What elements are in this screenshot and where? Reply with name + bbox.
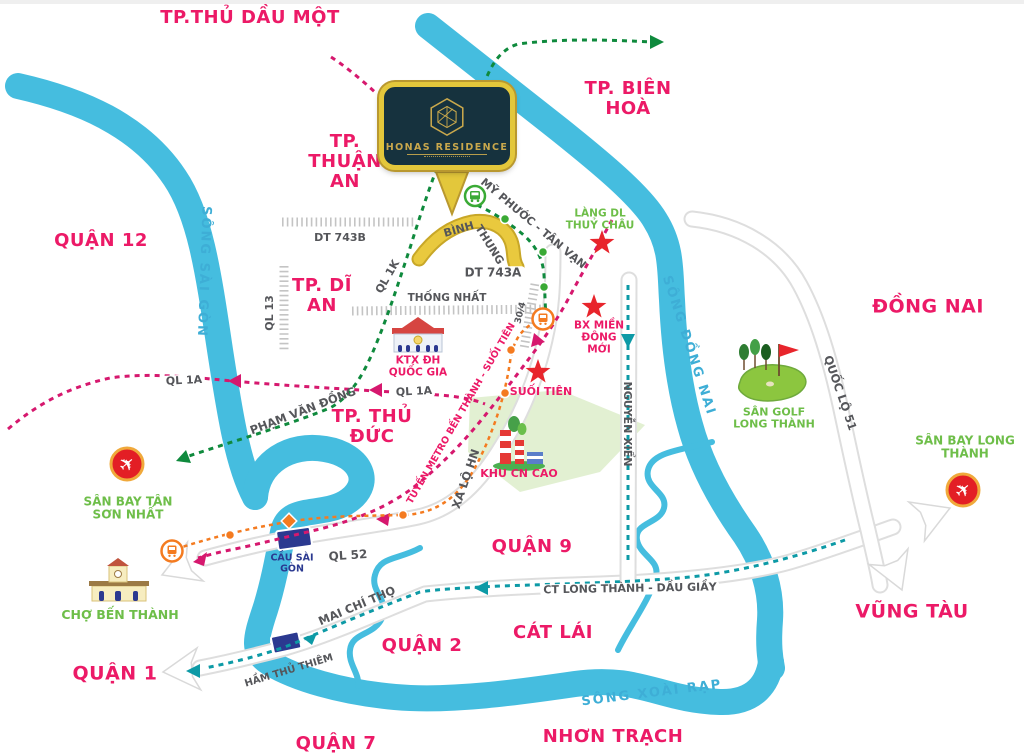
label-quan-12: QUẬN 12 [54, 231, 148, 251]
golf-course-icon [739, 339, 806, 401]
label-tp-di-an: TP. DĨ AN [291, 276, 353, 316]
green-station-dot [539, 248, 548, 257]
train-station-icon-benthanh [162, 541, 183, 562]
road-quoclo51 [692, 219, 880, 585]
metro-station-dot [226, 531, 235, 540]
label-dt743b: DT 743B [314, 232, 366, 244]
label-cau-sai-gon: CẦU SÀI GÒN [266, 553, 318, 574]
label-ql1a-east: QL 1A [393, 385, 436, 400]
label-vung-tau: VŨNG TÀU [855, 601, 968, 622]
label-tp-thuan-an: TP. THUẬN AN [307, 132, 383, 192]
label-nhon-trach: NHƠN TRẠCH [543, 727, 684, 747]
project-logo-card: HONAS RESIDENCE [379, 82, 515, 170]
project-rule [407, 154, 487, 155]
star-icon-thuychau [590, 230, 615, 254]
label-dong-nai: ĐỒNG NAI [872, 296, 984, 317]
label-cat-lai: CÁT LÁI [513, 623, 593, 643]
green-station-dot [540, 283, 549, 292]
route-thudaumot [331, 57, 377, 94]
airplane-icon-longthanh: ✈ [947, 474, 979, 506]
airplane-icon-tansonnhat: ✈ [111, 448, 143, 480]
honas-hexagon-icon [425, 95, 469, 139]
label-suoi-tien: SUỐI TIÊN [510, 386, 572, 398]
top-border-strip [0, 0, 1024, 4]
label-quan-2: QUẬN 2 [382, 636, 463, 656]
label-quan-7: QUẬN 7 [296, 734, 377, 754]
train-station-icon-suoitien [533, 309, 554, 330]
university-building-icon [392, 317, 444, 352]
green-station-dot [501, 215, 510, 224]
label-tp-thu-duc: TP. THỦ ĐỨC [326, 407, 418, 447]
label-quan-1: QUẬN 1 [72, 663, 157, 684]
label-dt743a: DT 743A [462, 266, 525, 279]
label-lang-dl-thuy-chau: LÀNG DL THUỶ CHÂU [564, 208, 636, 232]
metro-station-dot [507, 346, 516, 355]
label-san-bay-tan-son-nhat: SÂN BAY TÂN SƠN NHẤT [68, 496, 188, 523]
label-khu-cn-cao: KHU CN CAO [480, 468, 558, 480]
map-canvas: ✈ ✈ [0, 0, 1024, 754]
arrowhead-green-airport [176, 450, 191, 463]
label-ql13: QL 13 [264, 295, 276, 331]
label-quan-9: QUẬN 9 [492, 537, 573, 557]
arrowhead-green-bienhoa [650, 35, 664, 49]
label-tp-bien-hoa: TP. BIÊN HOÀ [576, 79, 680, 119]
label-thong-nhat: THỐNG NHẤT [408, 293, 487, 305]
star-icon-bxmiendong [582, 294, 607, 318]
label-tp-thu-dau-mot: TP.THỦ DẦU MỘT [160, 8, 339, 28]
metro-station-dot [399, 511, 408, 520]
metro-station-dot [501, 389, 510, 398]
label-san-bay-long-thanh: SÂN BAY LONG THÀNH [915, 435, 1015, 462]
label-nguyen-xien: NGUYỄN XIỂN [621, 382, 633, 467]
arrowhead-ql1a-2 [369, 383, 382, 397]
project-pointer [436, 172, 468, 214]
label-bx-mien-dong-moi: BX MIỀN ĐÔNG MỚI [570, 320, 628, 355]
label-ql52: QL 52 [328, 548, 368, 564]
bridge-icon [276, 527, 312, 551]
market-building-icon [89, 558, 149, 601]
label-cho-ben-thanh: CHỢ BẾN THÀNH [61, 608, 178, 622]
project-name: HONAS RESIDENCE [386, 142, 508, 153]
label-ql1a-west: QL 1A [163, 374, 206, 389]
project-tagline-rule [424, 156, 470, 157]
label-san-golf-long-thanh: SÂN GOLF LONG THÀNH [729, 407, 819, 432]
label-ktx-dh-quoc-gia: KTX ĐH QUỐC GIA [388, 355, 448, 379]
